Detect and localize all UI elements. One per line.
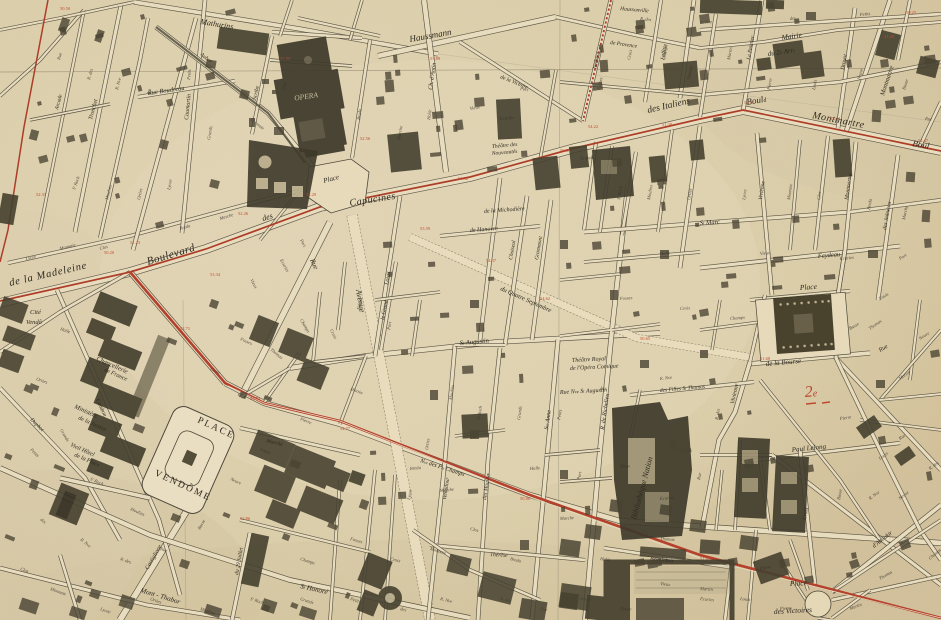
svg-text:53.34: 53.34 [210, 272, 221, 277]
svg-text:54.62: 54.62 [540, 296, 550, 301]
svg-text:50.80: 50.80 [520, 496, 531, 501]
svg-text:51.23: 51.23 [130, 240, 141, 245]
svg-text:Vieux: Vieux [620, 463, 630, 469]
svg-text:Halle: Halle [659, 250, 671, 256]
svg-text:51.68: 51.68 [760, 356, 771, 361]
svg-text:53.29: 53.29 [306, 192, 317, 197]
svg-text:52.71: 52.71 [180, 326, 190, 331]
svg-text:Thomas: Thomas [660, 536, 675, 542]
svg-text:53.44: 53.44 [830, 116, 841, 121]
svg-text:52.86: 52.86 [240, 516, 251, 521]
svg-text:Vieux: Vieux [660, 581, 671, 587]
svg-text:des: des [600, 385, 607, 391]
svg-text:Vendô: Vendô [26, 319, 43, 326]
svg-text:54.37: 54.37 [486, 258, 497, 263]
svg-text:Croix: Croix [680, 305, 691, 311]
svg-text:54.22: 54.22 [588, 124, 598, 129]
svg-text:54.32: 54.32 [458, 176, 468, 181]
svg-text:51.83: 51.83 [700, 556, 711, 561]
svg-text:52.26: 52.26 [238, 211, 249, 216]
svg-text:Vieux: Vieux [760, 250, 771, 256]
svg-text:50.65: 50.65 [640, 336, 651, 341]
svg-text:53.89: 53.89 [430, 56, 441, 61]
svg-text:54.77: 54.77 [340, 426, 351, 431]
svg-text:Rue: Rue [924, 116, 932, 122]
svg-text:53.59: 53.59 [420, 226, 431, 231]
svg-text:51.38: 51.38 [662, 122, 673, 127]
svg-text:St Marc: St Marc [700, 219, 721, 227]
svg-text:Ecuries: Ecuries [499, 115, 515, 121]
svg-text:51.28: 51.28 [884, 34, 895, 39]
svg-text:50.20: 50.20 [104, 250, 115, 255]
svg-text:Ecuries: Ecuries [659, 495, 675, 501]
svg-text:53.74: 53.74 [250, 396, 261, 401]
svg-text:54.47: 54.47 [918, 138, 929, 143]
svg-text:Halle: Halle [529, 465, 541, 471]
svg-text:Cité: Cité [30, 309, 42, 316]
svg-text:50.50: 50.50 [60, 6, 71, 11]
svg-text:52.41: 52.41 [744, 100, 754, 105]
svg-text:50.35: 50.35 [560, 148, 571, 153]
svg-text:Neuve: Neuve [619, 606, 632, 612]
svg-text:Martin: Martin [699, 586, 714, 592]
svg-text:Place: Place [799, 282, 818, 292]
svg-text:52.31: 52.31 [36, 192, 46, 197]
svg-text:50.25: 50.25 [906, 10, 917, 15]
svg-text:Pierre: Pierre [779, 605, 792, 611]
svg-text:52.56: 52.56 [360, 136, 371, 141]
svg-text:Marche: Marche [559, 515, 574, 521]
svg-text:Thérèse: Thérèse [490, 552, 508, 559]
svg-text:51.53: 51.53 [280, 56, 291, 61]
svg-text:Fosses: Fosses [619, 295, 633, 301]
